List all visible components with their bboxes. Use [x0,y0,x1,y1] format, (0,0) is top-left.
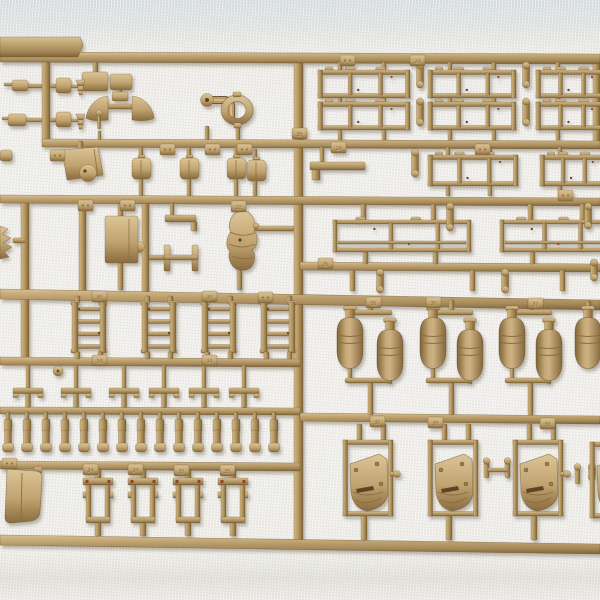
svg-text:34: 34 [132,468,138,474]
photo-of-model-sprue: 2424242422223535252530303030363636363737… [0,0,600,600]
svg-text:35: 35 [224,469,230,475]
svg-text:22: 22 [235,205,241,211]
hatch-frames [343,440,600,518]
svg-text:24: 24 [414,59,420,65]
svg-text:38: 38 [432,421,438,427]
svg-text:35: 35 [296,132,302,138]
edge-parts [0,226,63,523]
svg-text:34: 34 [206,359,212,365]
svg-text:30: 30 [96,295,102,301]
hatch-plate-part [62,147,103,182]
strip-parts [3,412,280,452]
svg-text:37: 37 [532,302,538,308]
pipe-and-ring [201,92,254,128]
sprue: 2424242422223535252530303030363636363737… [0,37,600,554]
svg-text:35: 35 [178,469,184,475]
svg-text:30: 30 [206,295,212,301]
svg-text:38: 38 [544,422,550,428]
svg-text:25: 25 [322,262,328,268]
svg-text:36: 36 [370,301,376,307]
svg-text:36: 36 [374,420,380,426]
svg-text:34: 34 [96,359,102,365]
fence-frames [310,67,600,186]
t-bar-parts [13,365,259,408]
svg-text:34: 34 [87,468,93,474]
svg-text:24: 24 [335,146,341,152]
bracket-frames [83,469,248,536]
svg-text:36: 36 [430,301,436,307]
mid-left-parts [105,215,198,271]
rolled-tarp-part [227,211,259,270]
fender-frames [333,217,600,252]
bomb-parts [337,306,600,383]
ladder-parts [71,296,296,359]
sprue-photo: 2424242422223535252530303030363636363737… [0,0,600,600]
canteen-boxes [132,155,266,181]
